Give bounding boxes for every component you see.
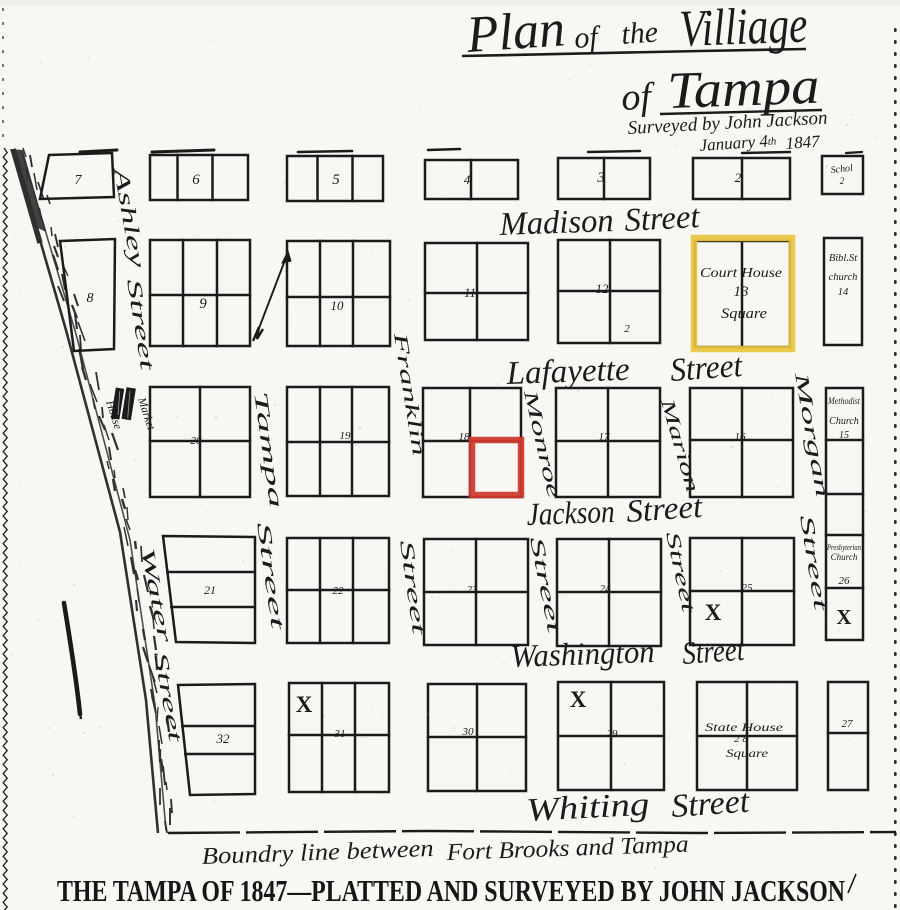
svg-text:27: 27 (842, 718, 854, 730)
svg-text:Street: Street (624, 199, 702, 239)
svg-text:2 8: 2 8 (734, 733, 748, 745)
svg-text:24: 24 (600, 583, 612, 595)
svg-text:20: 20 (191, 435, 203, 447)
svg-text:21: 21 (204, 583, 216, 597)
svg-text:1847: 1847 (785, 132, 822, 153)
svg-text:25: 25 (742, 582, 754, 594)
svg-text:Methodist: Methodist (827, 396, 860, 406)
svg-text:6: 6 (192, 172, 200, 188)
svg-text:Street: Street (625, 488, 704, 529)
svg-text:church: church (829, 272, 858, 283)
svg-text:32: 32 (216, 731, 231, 746)
svg-text:THE TAMPA OF 1847—PLATTED AND: THE TAMPA OF 1847—PLATTED AND SURVEYED B… (57, 873, 845, 908)
svg-text:23: 23 (467, 584, 479, 596)
svg-text:X: X (836, 605, 851, 629)
svg-text:10: 10 (331, 298, 345, 313)
svg-text:3: 3 (596, 170, 605, 186)
svg-text:Square: Square (721, 306, 767, 322)
svg-text:26: 26 (839, 575, 851, 587)
svg-text:15: 15 (839, 430, 849, 441)
svg-text:Washington: Washington (510, 633, 655, 674)
svg-text:X: X (296, 692, 313, 717)
svg-text:th: th (767, 135, 777, 148)
svg-text:2: 2 (624, 323, 630, 335)
svg-text:22: 22 (333, 585, 345, 597)
svg-text:2: 2 (840, 176, 845, 186)
svg-text:13: 13 (734, 284, 749, 300)
svg-text:Street: Street (670, 784, 751, 825)
svg-text:Square: Square (726, 746, 769, 760)
svg-text:17: 17 (599, 431, 611, 443)
svg-text:12: 12 (596, 281, 610, 296)
svg-text:2: 2 (735, 170, 742, 185)
svg-text:Jackson: Jackson (526, 493, 615, 532)
svg-text:18: 18 (459, 431, 471, 443)
svg-text:Bibl.St: Bibl.St (829, 253, 858, 264)
svg-text:5: 5 (332, 172, 340, 188)
svg-text:Whiting: Whiting (526, 787, 651, 829)
svg-text:11: 11 (464, 285, 476, 300)
svg-text:Court House: Court House (700, 266, 782, 281)
svg-text:Madison: Madison (498, 203, 614, 243)
svg-text:8: 8 (87, 291, 94, 306)
svg-text:30: 30 (462, 726, 475, 738)
svg-text:X: X (570, 687, 587, 712)
svg-text:4: 4 (464, 172, 471, 187)
svg-text:29: 29 (607, 728, 619, 740)
svg-text:9: 9 (199, 296, 207, 312)
svg-text:Presbyterian: Presbyterian (826, 543, 861, 552)
svg-text:14: 14 (838, 287, 849, 298)
svg-text:Church: Church (829, 416, 859, 427)
svg-text:Street: Street (681, 631, 746, 671)
svg-text:Schol: Schol (830, 163, 853, 176)
svg-text:the: the (620, 16, 659, 51)
svg-text:State House: State House (705, 720, 784, 734)
svg-text:Church: Church (831, 552, 858, 562)
svg-text:7: 7 (75, 173, 83, 188)
svg-text:Street: Street (669, 348, 744, 389)
svg-text:31: 31 (334, 728, 346, 740)
svg-text:16: 16 (735, 431, 747, 443)
svg-text:Lafayette: Lafayette (505, 352, 630, 392)
svg-text:X: X (705, 600, 722, 625)
svg-text:19: 19 (340, 430, 352, 442)
